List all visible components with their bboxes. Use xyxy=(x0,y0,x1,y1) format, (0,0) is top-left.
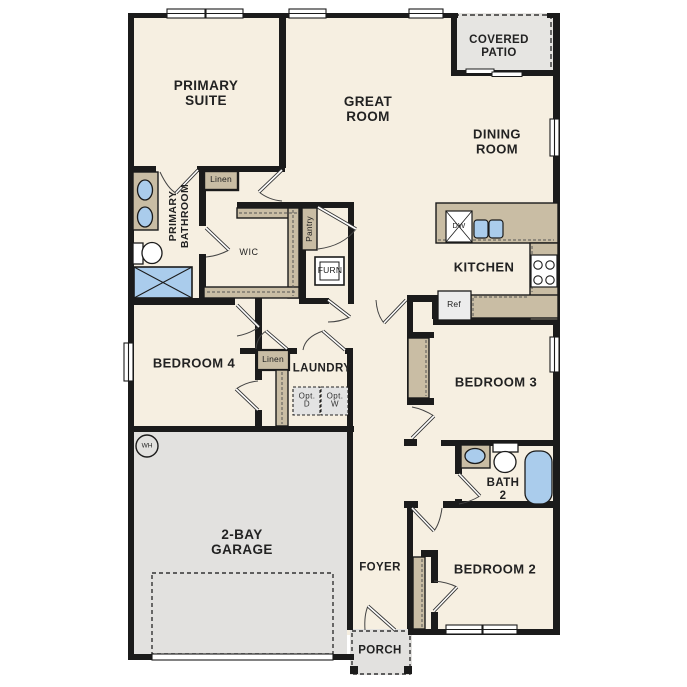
kitchen-sink-icon xyxy=(474,220,503,238)
patio-slider-panel xyxy=(466,69,494,74)
toilet2-icon xyxy=(493,443,518,473)
porch-floor xyxy=(350,629,412,675)
window-icon xyxy=(409,9,443,18)
garage-door-opening xyxy=(152,654,333,660)
optional-washer-dryer xyxy=(293,387,348,415)
window-icon xyxy=(167,9,205,18)
window-icon xyxy=(550,119,559,156)
dishwasher-icon xyxy=(446,211,472,242)
refrigerator-icon xyxy=(438,291,471,320)
kitchen-counter-bottom xyxy=(471,295,558,318)
furnace-icon xyxy=(315,257,344,285)
pantry-shelf xyxy=(302,208,317,250)
bathtub-icon xyxy=(525,451,552,504)
window-icon xyxy=(124,343,133,381)
shower-icon xyxy=(134,267,192,298)
floorplan-page: PRIMARY SUITE GREAT ROOM COVERED PATIO D… xyxy=(0,0,687,687)
linen-closet-upper xyxy=(204,171,238,190)
window-icon xyxy=(446,625,482,634)
floorplan-graphic xyxy=(0,0,687,687)
window-icon xyxy=(483,625,517,634)
floor-areas xyxy=(128,13,560,675)
bedroom2-closet xyxy=(413,557,425,629)
patio-slider-panel xyxy=(492,72,522,77)
window-icon xyxy=(206,9,243,18)
linen-closet-hall xyxy=(257,350,289,370)
stove-icon xyxy=(531,255,557,287)
patio-floor xyxy=(451,13,555,71)
water-heater-icon xyxy=(136,435,158,457)
garage-floor xyxy=(134,431,347,656)
window-icon xyxy=(289,9,326,18)
window-icon xyxy=(550,337,559,372)
toilet-icon xyxy=(133,243,162,265)
bath2-sink-icon xyxy=(465,449,485,464)
